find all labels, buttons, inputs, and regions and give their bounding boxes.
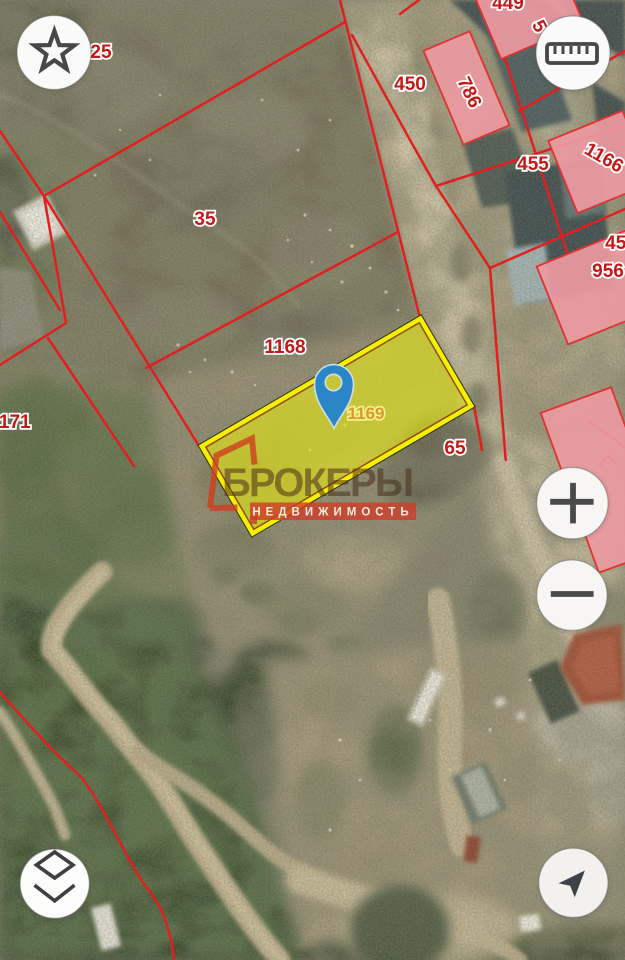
svg-text:35: 35: [194, 209, 216, 230]
svg-text:450: 450: [394, 74, 426, 95]
svg-text:БРОКЕРЫ: БРОКЕРЫ: [222, 461, 414, 505]
svg-text:956: 956: [592, 261, 624, 282]
svg-text:455: 455: [517, 154, 549, 175]
svg-text:НЕДВИЖИМОСТЬ: НЕДВИЖИМОСТЬ: [252, 507, 413, 519]
svg-text:1168: 1168: [264, 337, 305, 358]
svg-text:65: 65: [444, 438, 466, 459]
svg-text:1169: 1169: [348, 404, 385, 423]
svg-text:456: 456: [605, 233, 625, 254]
svg-text:1171: 1171: [0, 412, 31, 433]
svg-text:449: 449: [492, 0, 524, 14]
svg-text:25: 25: [90, 42, 112, 63]
